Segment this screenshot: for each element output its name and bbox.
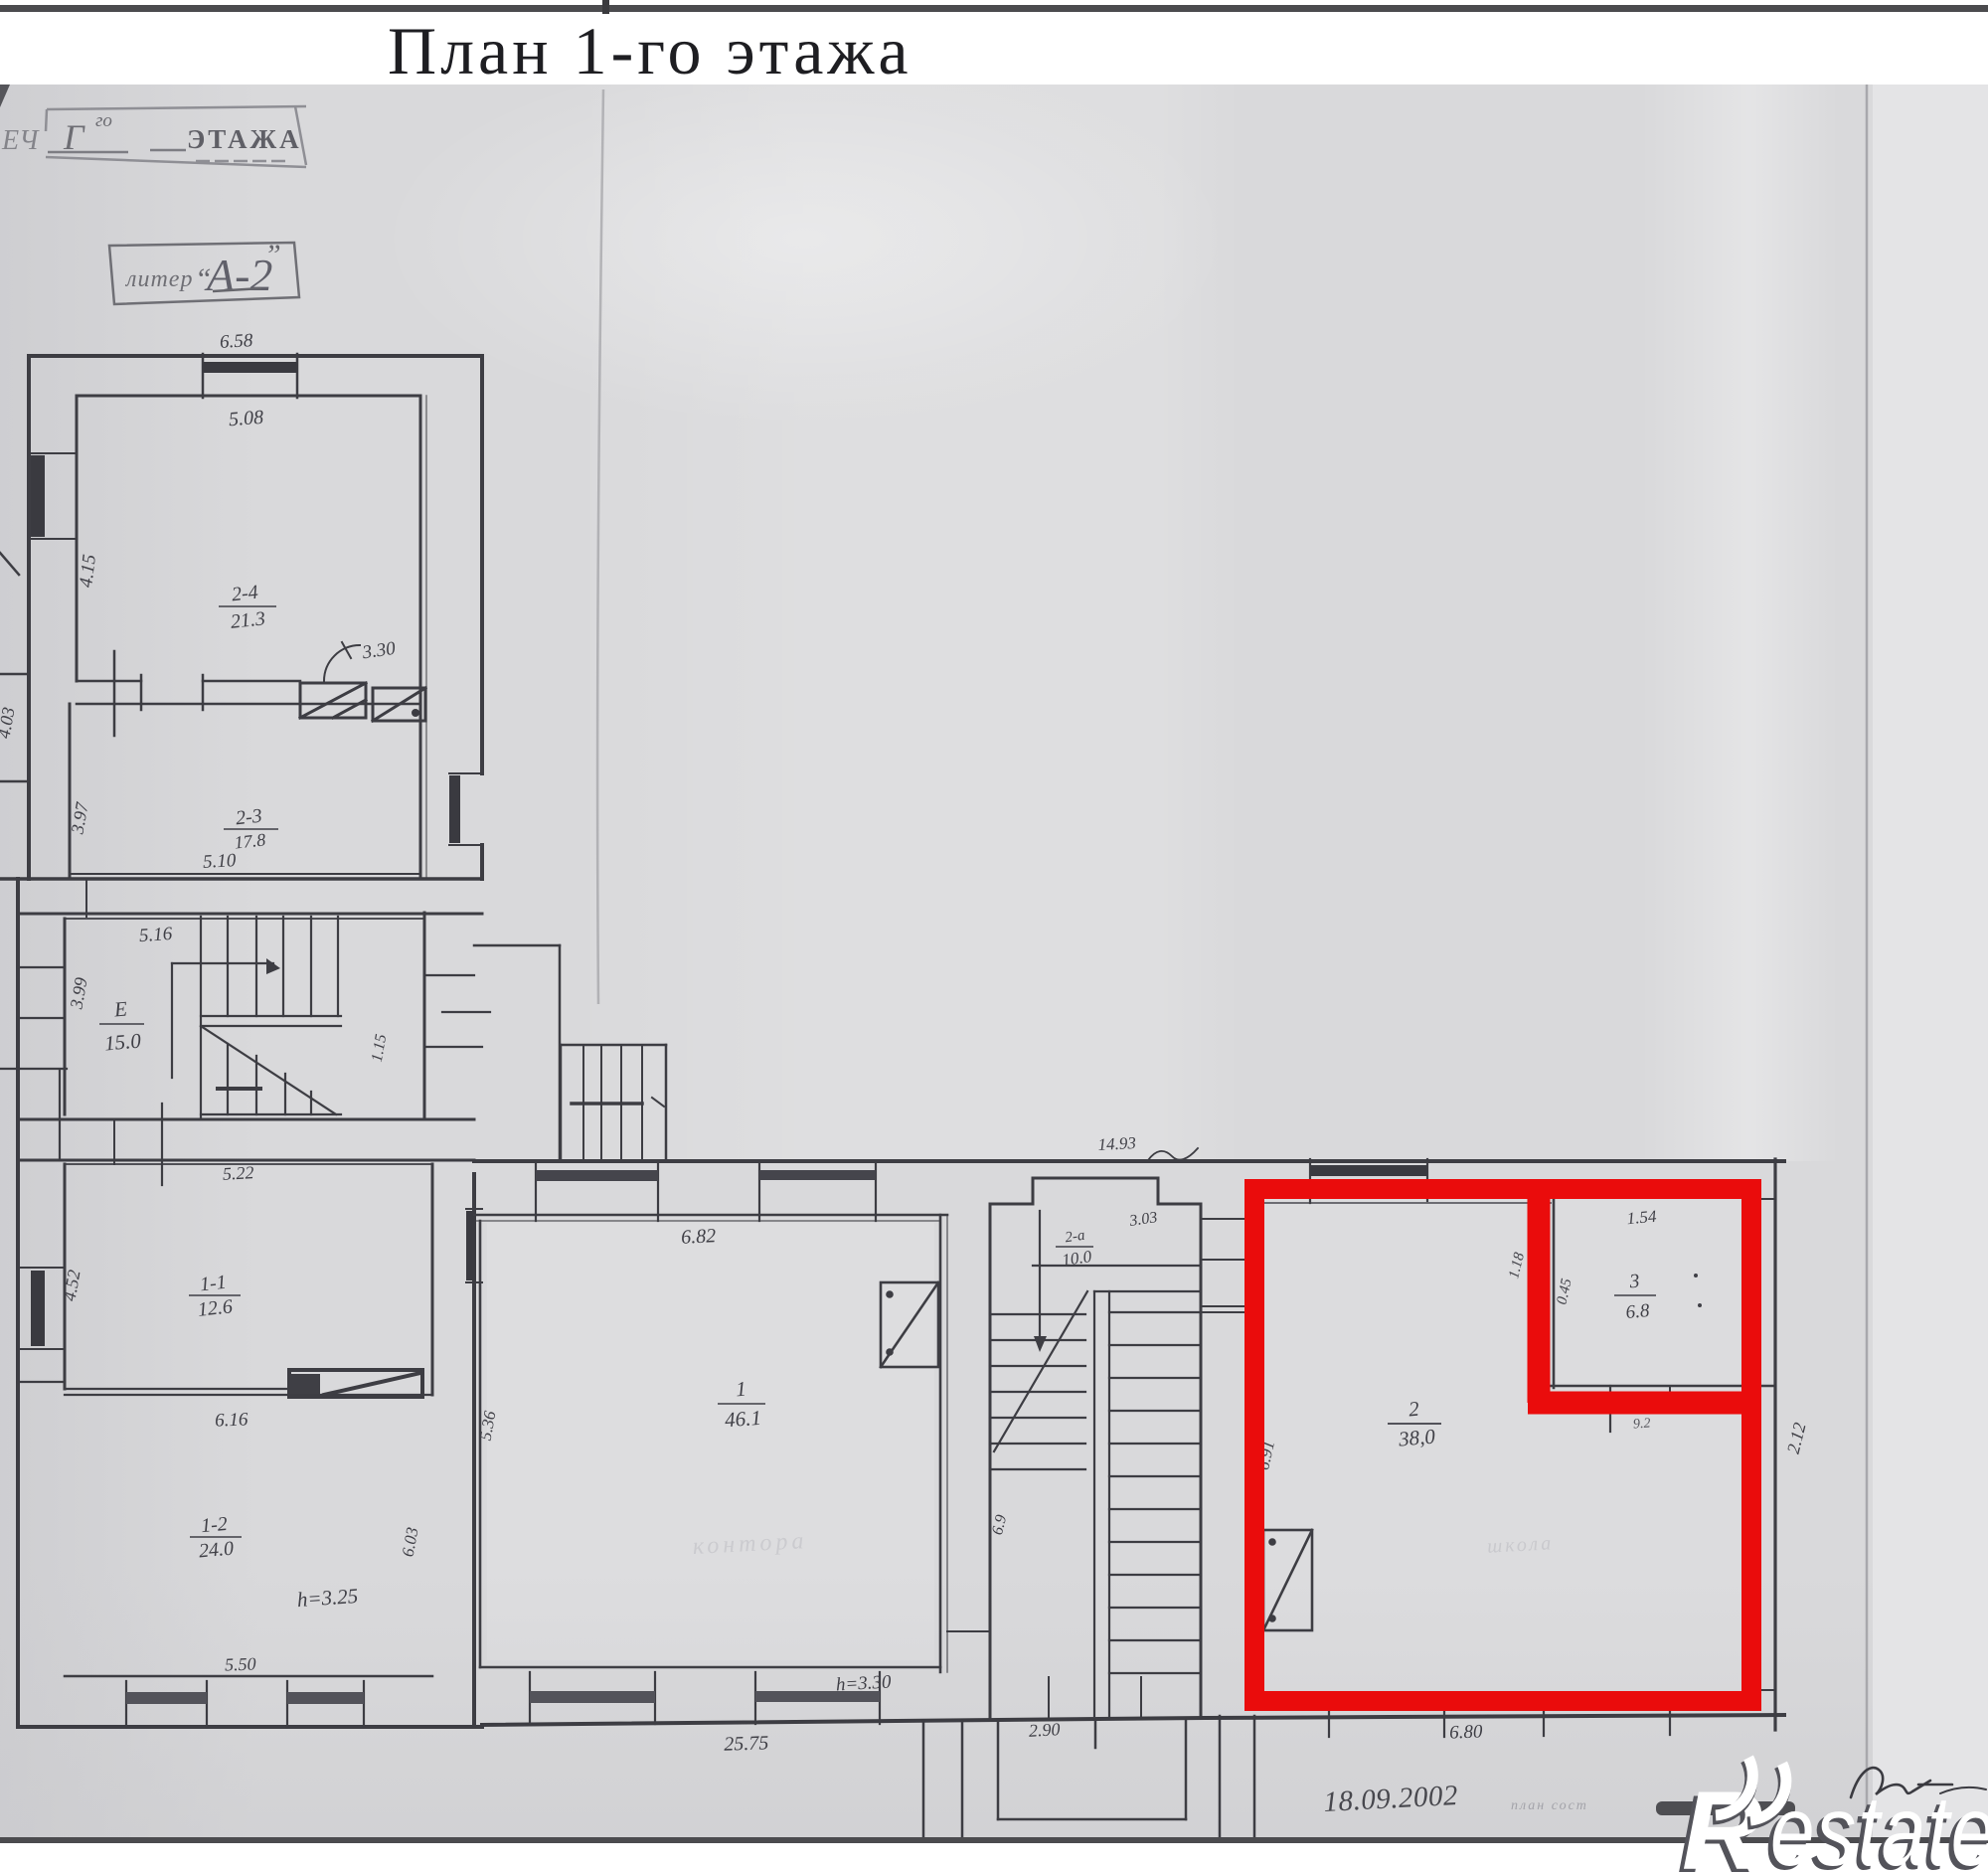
svg-text:6.16: 6.16 [215,1409,248,1431]
svg-text:5.08: 5.08 [228,407,263,430]
svg-text:3: 3 [1628,1271,1641,1293]
svg-text:План 1-го этажа: План 1-го этажа [388,13,912,88]
svg-text:12.6: 12.6 [197,1295,234,1321]
svg-text:46.1: 46.1 [724,1406,761,1433]
svg-text:15.0: 15.0 [103,1028,142,1055]
svg-text:2-4: 2-4 [231,582,259,606]
svg-text:план сост: план сост [1511,1798,1588,1813]
svg-text:6.82: 6.82 [681,1225,717,1249]
svg-text:5.50: 5.50 [225,1653,256,1674]
svg-text:9.2: 9.2 [1633,1416,1652,1432]
svg-text:литер: литер [124,266,193,292]
svg-text:1-1: 1-1 [199,1272,228,1296]
svg-text:6.80: 6.80 [1449,1721,1483,1743]
svg-text:1.54: 1.54 [1626,1207,1658,1229]
svg-text:2-а: 2-а [1064,1228,1085,1247]
svg-text:2-3: 2-3 [235,805,263,830]
svg-text:”: ” [264,239,281,271]
svg-text:5.22: 5.22 [222,1162,254,1184]
svg-text:h=3.25: h=3.25 [296,1584,359,1612]
svg-text:24.0: 24.0 [198,1538,235,1563]
svg-text:Е: Е [112,996,128,1021]
svg-text:1: 1 [735,1377,746,1402]
svg-text:6.8: 6.8 [1625,1300,1651,1323]
svg-text:А-2: А-2 [204,250,272,300]
svg-text:1-2: 1-2 [200,1513,228,1537]
svg-text:25.75: 25.75 [724,1732,769,1756]
svg-text:17.8: 17.8 [234,829,266,852]
svg-text:h=3.30: h=3.30 [835,1672,892,1696]
svg-text:6.58: 6.58 [220,330,254,353]
svg-text:14.93: 14.93 [1097,1133,1136,1154]
svg-text:38,0: 38,0 [1397,1424,1436,1450]
svg-text:5.16: 5.16 [138,924,173,946]
svg-text:го: го [95,110,112,131]
svg-text:ЕЧ: ЕЧ [1,125,40,156]
svg-text:5.10: 5.10 [203,850,238,873]
svg-text:2.90: 2.90 [1028,1719,1061,1741]
svg-text:21.3: 21.3 [230,607,266,633]
svg-text:ЭТАЖА: ЭТАЖА [187,124,302,154]
svg-text:estate: estate [1770,1776,1988,1872]
svg-text:4.15: 4.15 [76,554,100,590]
svg-text:школа: школа [1487,1532,1555,1557]
